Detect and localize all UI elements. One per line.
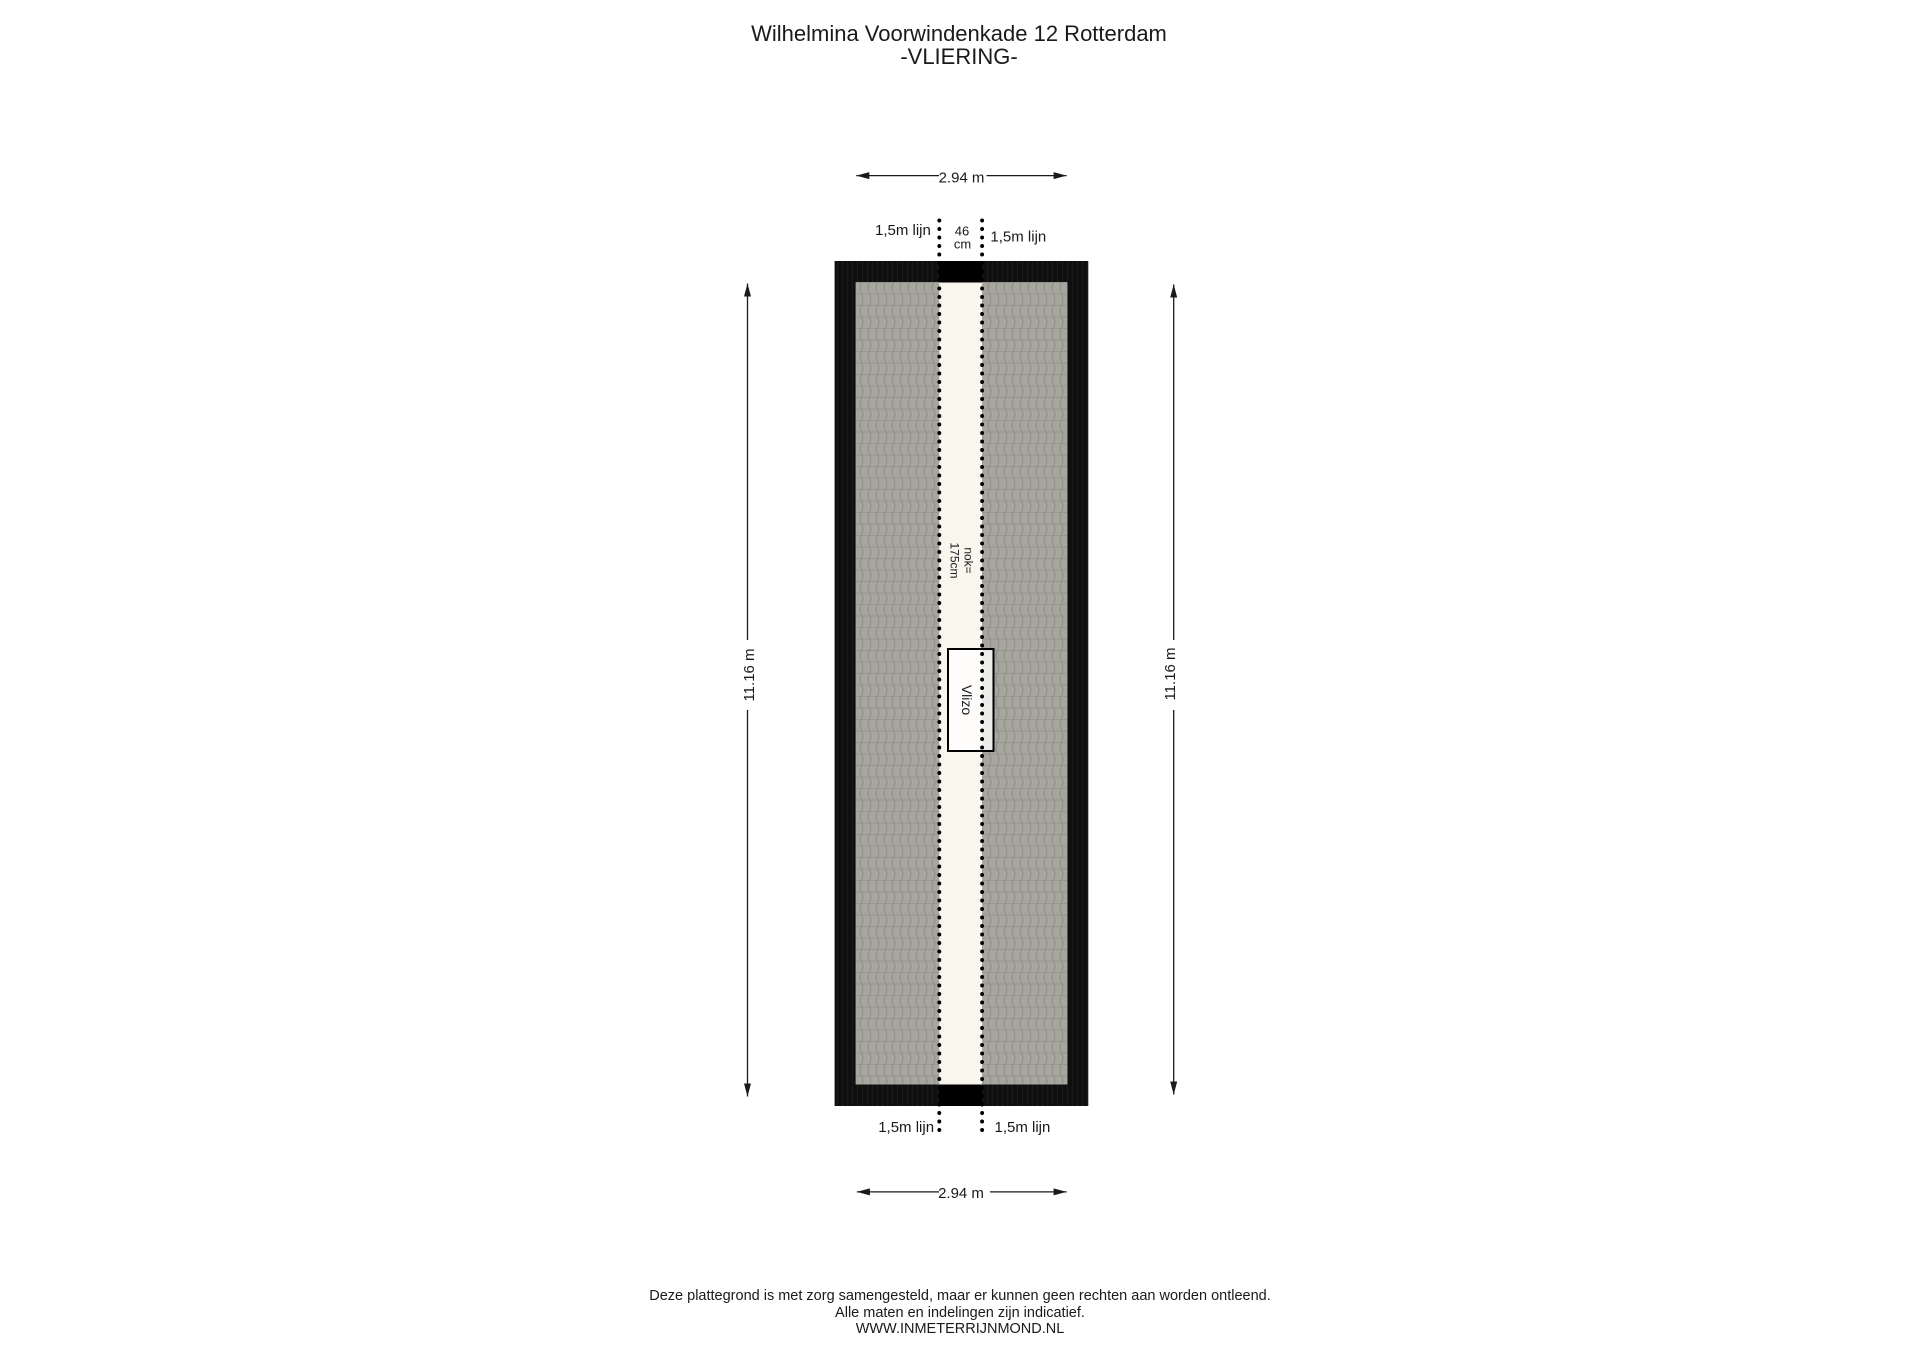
svg-text:11.16 m: 11.16 m [741, 648, 758, 701]
svg-text:2.94 m: 2.94 m [938, 1185, 984, 1202]
svg-text:Wilhelmina Voorwindenkade 12 R: Wilhelmina Voorwindenkade 12 Rotterdam [751, 21, 1167, 46]
svg-text:1,5m lijn: 1,5m lijn [990, 228, 1046, 245]
svg-text:2.94 m: 2.94 m [939, 170, 985, 187]
svg-text:WWW.INMETERRIJNMOND.NL: WWW.INMETERRIJNMOND.NL [856, 1321, 1065, 1337]
svg-text:nok=175cm: nok=175cm [948, 542, 976, 578]
svg-text:-VLIERING-: -VLIERING- [900, 44, 1017, 69]
svg-text:Deze plattegrond is met zorg s: Deze plattegrond is met zorg samengestel… [649, 1288, 1270, 1304]
svg-text:cm: cm [954, 237, 971, 252]
svg-text:11.16 m: 11.16 m [1162, 647, 1179, 700]
svg-text:1,5m lijn: 1,5m lijn [875, 222, 931, 239]
svg-text:1,5m lijn: 1,5m lijn [878, 1119, 934, 1136]
svg-text:Alle maten en indelingen zijn: Alle maten en indelingen zijn indicatief… [835, 1305, 1085, 1321]
svg-text:Vlizo: Vlizo [959, 685, 975, 716]
svg-text:1,5m lijn: 1,5m lijn [995, 1119, 1051, 1136]
